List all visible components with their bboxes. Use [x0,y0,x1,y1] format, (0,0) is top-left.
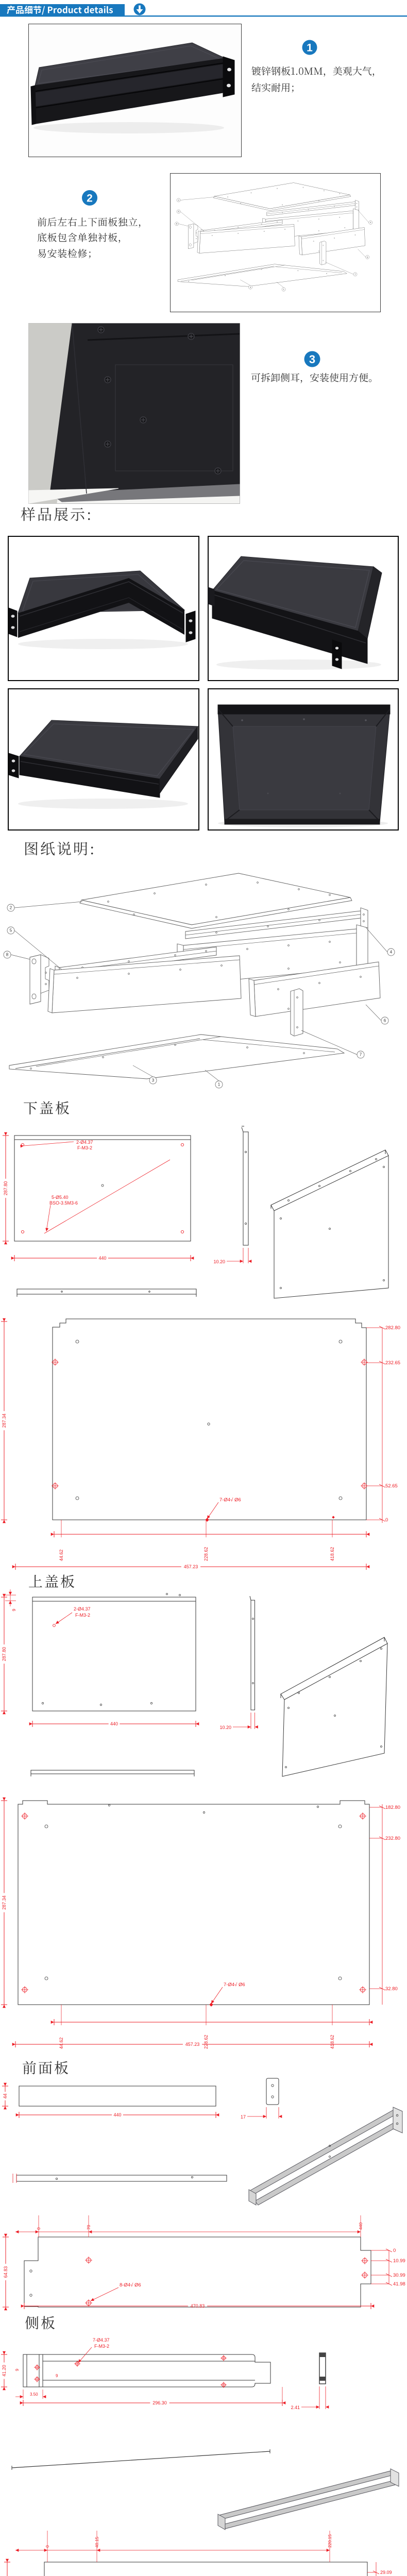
svg-text:5-Ø5.40: 5-Ø5.40 [52,1195,69,1200]
svg-text:2-Ø4.37: 2-Ø4.37 [76,1140,93,1145]
svg-text:457.23: 457.23 [185,2042,200,2047]
svg-text:F-M3-2: F-M3-2 [75,1613,90,1618]
svg-text:2.41: 2.41 [291,2405,300,2410]
svg-text:8-Ø4√ Ø6: 8-Ø4√ Ø6 [120,2282,141,2288]
svg-text:10.20: 10.20 [219,1725,231,1730]
svg-text:9: 9 [56,2374,58,2378]
svg-text:7-Ø4√ Ø6: 7-Ø4√ Ø6 [219,1497,241,1503]
svg-text:70: 70 [86,2225,91,2230]
svg-text:BSO-3.5M3-6: BSO-3.5M3-6 [49,1200,78,1206]
svg-text:0: 0 [45,2545,50,2548]
svg-text:F-M3-2: F-M3-2 [94,2344,109,2349]
svg-text:41.98: 41.98 [393,2281,405,2287]
svg-text:282.80: 282.80 [385,1325,400,1331]
svg-text:3: 3 [309,353,315,366]
svg-text:9: 9 [11,1608,16,1611]
svg-text:228.62: 228.62 [203,1547,209,1561]
svg-text:29.09: 29.09 [380,2570,392,2575]
svg-text:F-M3-2: F-M3-2 [77,1145,92,1150]
svg-text:41.20: 41.20 [2,2365,7,2377]
svg-text:440: 440 [113,2112,121,2117]
svg-text:228.62: 228.62 [203,2035,209,2049]
svg-text:457.23: 457.23 [184,1564,198,1569]
svg-text:32.80: 32.80 [385,1986,398,1992]
svg-text:418.62: 418.62 [330,2035,335,2049]
svg-text:287.34: 287.34 [2,1895,7,1910]
svg-text:17: 17 [241,2114,246,2120]
svg-text:10.20: 10.20 [213,1259,225,1264]
svg-text:30.99: 30.99 [393,2273,405,2278]
svg-text:287.34: 287.34 [2,1414,7,1428]
svg-text:470.83: 470.83 [191,2303,205,2309]
svg-text:418.62: 418.62 [330,1547,335,1561]
svg-text:0: 0 [385,1517,388,1523]
svg-text:182.80: 182.80 [385,1805,400,1810]
svg-text:2-Ø4.37: 2-Ø4.37 [74,1606,91,1612]
svg-text:220.15: 220.15 [327,2534,332,2548]
svg-text:232.80: 232.80 [385,1836,400,1841]
svg-text:232.65: 232.65 [385,1360,400,1366]
svg-text:440: 440 [358,2223,363,2230]
svg-text:10.99: 10.99 [393,2258,405,2264]
svg-text:44: 44 [3,2093,8,2098]
svg-text:287.80: 287.80 [3,1181,8,1196]
svg-text:296.30: 296.30 [152,2400,167,2405]
svg-text:44.62: 44.62 [59,1549,64,1561]
svg-text:52.65: 52.65 [385,1483,398,1489]
svg-text:44.62: 44.62 [59,2037,64,2049]
svg-text:2: 2 [87,193,93,205]
svg-text:7-Ø4.37: 7-Ø4.37 [93,2337,110,2343]
svg-text:3.50: 3.50 [30,2392,38,2397]
svg-text:64.83: 64.83 [3,2266,8,2278]
svg-text:0: 0 [393,2248,396,2253]
svg-text:440: 440 [110,1721,118,1726]
svg-text:1: 1 [307,42,313,54]
svg-text:440: 440 [98,1256,106,1261]
svg-text:0: 0 [36,2227,41,2230]
svg-text:9: 9 [15,2368,20,2371]
svg-text:7-Ø4√ Ø6: 7-Ø4√ Ø6 [224,1982,245,1988]
svg-text:287.80: 287.80 [2,1647,7,1662]
svg-text:40.15: 40.15 [94,2536,99,2548]
